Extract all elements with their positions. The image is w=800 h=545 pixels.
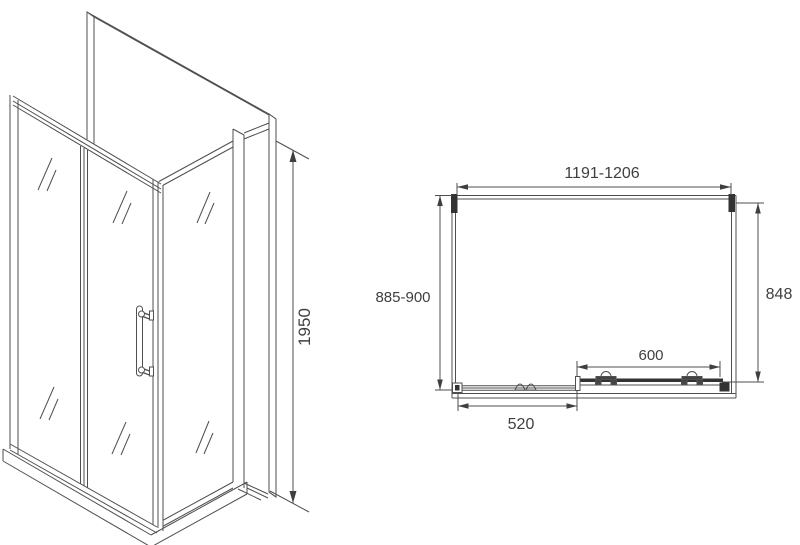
door-end-profile bbox=[720, 383, 730, 392]
height-dimension: 1950 bbox=[270, 141, 314, 512]
right-depth-dimension: 848 bbox=[722, 203, 792, 382]
depth-left-dim-label: 885-900 bbox=[375, 289, 430, 306]
plan-sliding-door bbox=[576, 372, 730, 392]
side-glass-panel bbox=[153, 123, 269, 537]
height-dim-label: 1950 bbox=[295, 308, 314, 346]
technical-drawing: 1950 bbox=[0, 0, 800, 545]
fixed-panel-dimension: 520 bbox=[458, 390, 577, 433]
door-roller-left bbox=[596, 372, 617, 385]
width-dim-label: 1191-1206 bbox=[564, 165, 639, 182]
technical-drawing-page: 1950 bbox=[0, 0, 800, 545]
depth-right-dim-label: 848 bbox=[766, 286, 793, 303]
isometric-view: 1950 bbox=[3, 12, 314, 545]
left-depth-dimension: 885-900 bbox=[375, 196, 452, 391]
plan-view: 1191-1206 885-900 848 600 bbox=[375, 165, 792, 433]
door-roller-right bbox=[682, 372, 703, 385]
door-width-dim-label: 600 bbox=[638, 347, 663, 364]
wall-profile-top-left bbox=[451, 194, 458, 213]
door-width-dimension: 600 bbox=[577, 347, 720, 377]
width-dimension: 1191-1206 bbox=[457, 165, 731, 195]
fixed-panel-dim-label: 520 bbox=[508, 416, 535, 433]
plan-fixed-panel bbox=[453, 383, 578, 393]
wall-profile-top-right bbox=[729, 194, 736, 212]
